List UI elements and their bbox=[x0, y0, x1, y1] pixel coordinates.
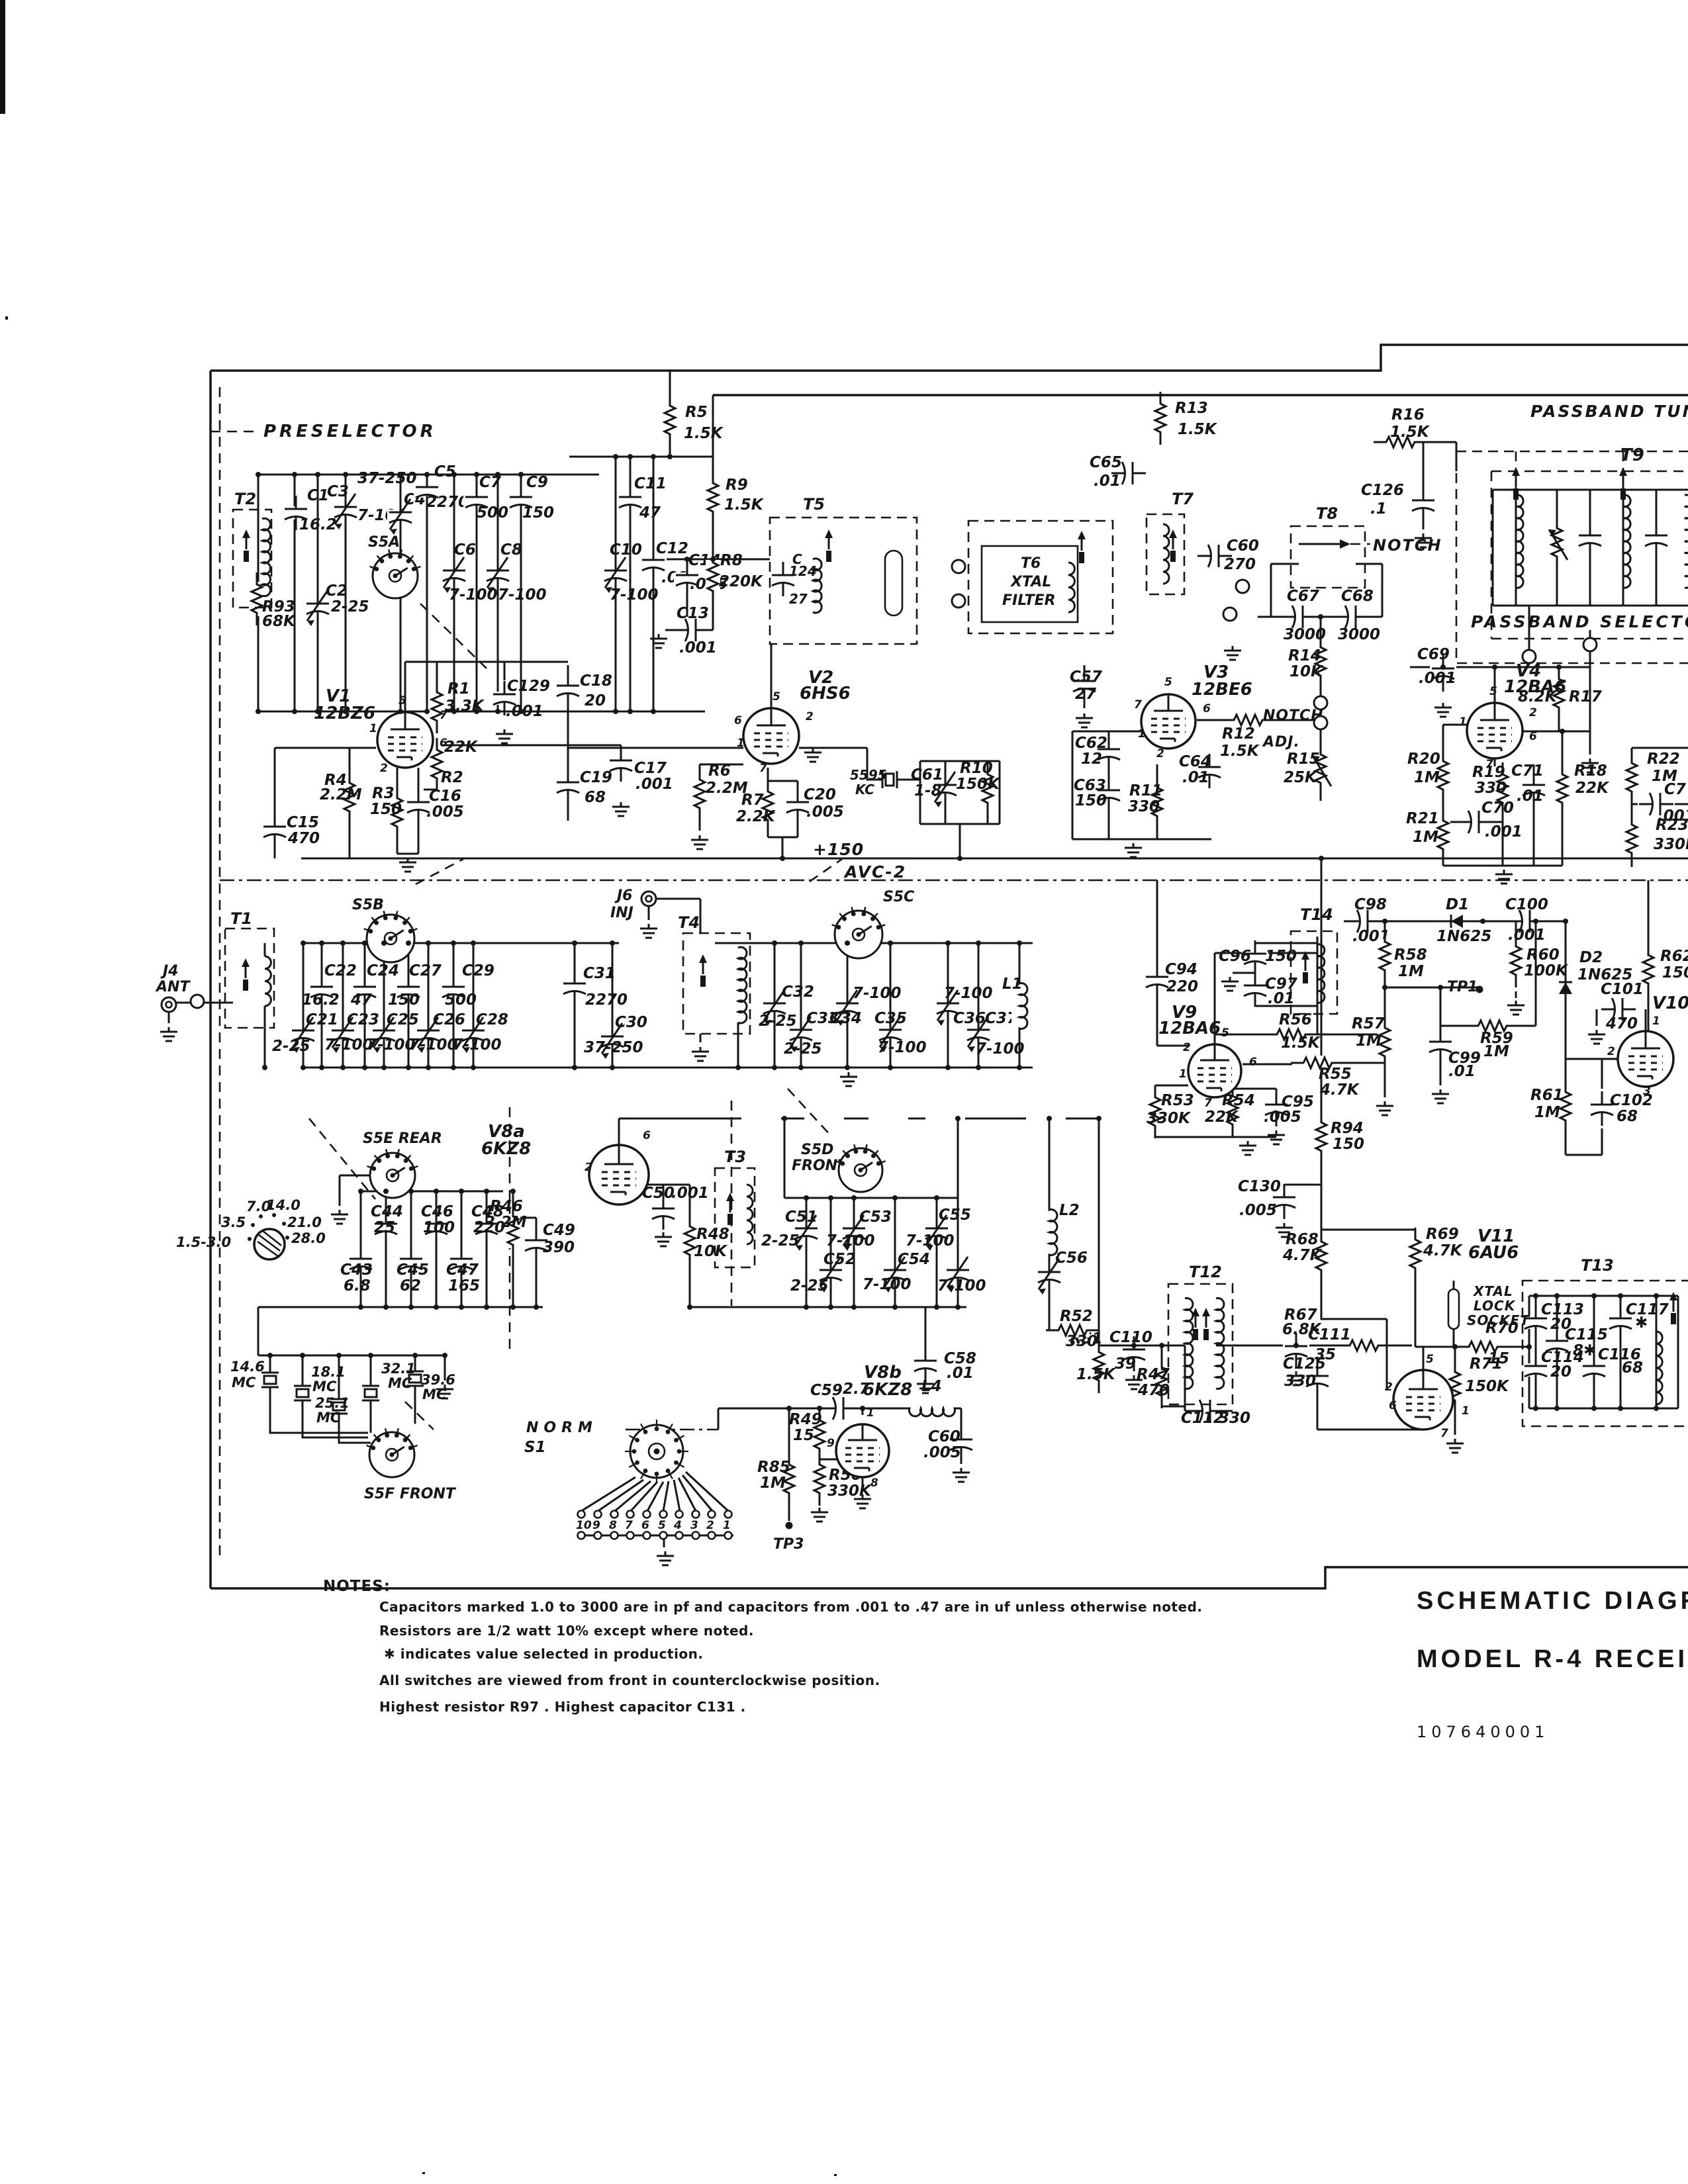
label: .005 bbox=[426, 803, 464, 821]
capacitor-C36: C367-100 bbox=[935, 985, 993, 1027]
label: 9 bbox=[827, 1437, 835, 1450]
label: C57 bbox=[1070, 668, 1102, 686]
label: C10 bbox=[610, 541, 642, 559]
label: C26 bbox=[433, 1011, 465, 1028]
label: R13 bbox=[1175, 400, 1208, 417]
capacitor-C46: C46100 bbox=[421, 1203, 455, 1245]
capacitor-C31: C312270 bbox=[561, 965, 628, 1009]
label: 6 bbox=[734, 714, 742, 727]
label: 25 bbox=[374, 1219, 395, 1236]
capacitor-C64: C64.01 bbox=[1179, 753, 1223, 788]
label: 2-25 bbox=[790, 1277, 829, 1295]
label: 27 bbox=[1075, 686, 1096, 703]
capacitor-C96: C96150 bbox=[1219, 940, 1297, 975]
label: D2 bbox=[1579, 949, 1603, 966]
label: R22 bbox=[1647, 751, 1680, 768]
label: 3000 bbox=[1338, 626, 1380, 643]
capacitor-unnamed: 7-100 bbox=[937, 1257, 986, 1295]
label: 330 bbox=[1128, 798, 1160, 815]
label: R21 bbox=[1406, 810, 1439, 827]
label: TP3 bbox=[773, 1536, 804, 1553]
crystal-X-32.1MC bbox=[360, 1376, 381, 1410]
label: C46 bbox=[421, 1203, 453, 1220]
label: C43 bbox=[340, 1261, 373, 1279]
label: 25K bbox=[1284, 769, 1318, 786]
label: R3 bbox=[372, 785, 395, 802]
capacitor-C17: C17.001 bbox=[608, 747, 673, 793]
label: R58 bbox=[1394, 946, 1427, 964]
rotary-switch-S5F bbox=[366, 1428, 417, 1477]
label: 16.2 bbox=[302, 991, 340, 1009]
label: 150 bbox=[1265, 948, 1297, 965]
label: 150 bbox=[522, 504, 554, 522]
capacitor-C4: C437-250 bbox=[357, 470, 426, 535]
ground-symbol bbox=[1239, 1141, 1256, 1155]
label: 68 bbox=[585, 789, 606, 806]
label: J6 bbox=[614, 887, 633, 904]
label: 2 bbox=[1529, 706, 1537, 719]
label: NORM bbox=[526, 1420, 598, 1436]
label: C28 bbox=[476, 1011, 508, 1028]
capacitor-C60: C60270 bbox=[1197, 537, 1259, 573]
label: 32.1 bbox=[381, 1361, 416, 1377]
resistor-R3: R3150 bbox=[370, 785, 404, 839]
label: C16 bbox=[429, 788, 461, 805]
label: MC bbox=[388, 1375, 412, 1391]
capacitor-C50: C50.001 bbox=[642, 1185, 709, 1230]
label: S5E REAR bbox=[363, 1130, 442, 1147]
label: 68K bbox=[262, 613, 297, 630]
capacitor-C-T9b bbox=[1643, 522, 1669, 557]
label: MC bbox=[312, 1379, 337, 1394]
switch-terminal bbox=[594, 1532, 602, 1539]
capacitor-C44: C4425 bbox=[371, 1203, 403, 1245]
section-label: PRESELECTOR bbox=[263, 422, 437, 441]
label: C100 bbox=[1505, 896, 1548, 913]
label: C24 bbox=[367, 962, 399, 979]
section-label: ANT bbox=[155, 979, 191, 995]
label: T6 bbox=[1021, 555, 1041, 572]
capacitor-C7: C7500 bbox=[463, 474, 508, 522]
label: .001 bbox=[1419, 670, 1456, 687]
label: R15 bbox=[1287, 751, 1320, 768]
label: C29 bbox=[462, 962, 494, 979]
label: C45 bbox=[397, 1261, 429, 1279]
label: .005 bbox=[806, 803, 844, 821]
label: 62 bbox=[400, 1277, 421, 1295]
label: 500 bbox=[445, 991, 477, 1009]
label: INJ bbox=[610, 905, 633, 921]
label: 12BA6 bbox=[1158, 1019, 1221, 1038]
label: .01 bbox=[1182, 769, 1209, 786]
transformer-T8: T8 bbox=[1291, 504, 1365, 588]
label: 1 bbox=[1652, 1015, 1660, 1028]
label: 220 bbox=[473, 1219, 505, 1236]
transformer-T14: T14 bbox=[1291, 905, 1337, 1014]
label: .005 bbox=[1239, 1202, 1277, 1219]
label: 7-100 bbox=[878, 1039, 927, 1056]
label: .01 bbox=[1517, 788, 1544, 805]
label: C51 bbox=[785, 1208, 818, 1226]
resistor-R69: R694.7K bbox=[1408, 1226, 1464, 1281]
label: 16.2 bbox=[299, 516, 337, 533]
ground-symbol bbox=[1507, 1001, 1524, 1015]
label: T14 bbox=[1300, 905, 1333, 924]
label: 6 bbox=[440, 737, 447, 750]
label: 5 bbox=[1164, 676, 1172, 689]
label: .001 bbox=[679, 639, 717, 657]
section-label: J4 bbox=[160, 963, 179, 979]
label: 270 bbox=[1224, 556, 1256, 573]
label: 1M bbox=[760, 1475, 786, 1492]
label: XTAL bbox=[1472, 1283, 1513, 1299]
label: 7 bbox=[1134, 698, 1142, 711]
label: 39 bbox=[1115, 1355, 1136, 1373]
label: C115 bbox=[1565, 1326, 1608, 1343]
label: T12 bbox=[1189, 1263, 1222, 1281]
label: S5F FRONT bbox=[364, 1486, 457, 1502]
label: 2 bbox=[1156, 747, 1164, 760]
feedthrough-terminal bbox=[1314, 696, 1327, 709]
label: 7-100 bbox=[453, 1036, 502, 1054]
scanned-schematic-page: { "title_block": {"line1": "SCHEMATIC DI… bbox=[0, 0, 1688, 2184]
label: 1M bbox=[1356, 1032, 1382, 1050]
label: 8✱ bbox=[1573, 1342, 1596, 1359]
label: 3000 bbox=[1284, 626, 1326, 643]
label: C126 bbox=[1361, 482, 1404, 499]
section-label: +150 bbox=[813, 840, 864, 859]
label: 12BE6 bbox=[1192, 680, 1252, 700]
crystal-frequency-label: 32.1 bbox=[381, 1361, 416, 1377]
ground-symbol bbox=[1432, 1089, 1449, 1103]
switch-terminal bbox=[708, 1532, 716, 1539]
label: T8 bbox=[1316, 504, 1338, 523]
label: C17 bbox=[634, 760, 667, 777]
label: 37-250 bbox=[357, 470, 417, 487]
capacitor-C2: C22-25 bbox=[305, 582, 369, 626]
label: C32 bbox=[782, 983, 814, 1001]
label: 165 bbox=[448, 1277, 480, 1295]
label: 5 bbox=[658, 1519, 666, 1532]
label: 7-100 bbox=[610, 586, 659, 604]
label: R23 bbox=[1656, 817, 1688, 834]
label: C15 bbox=[287, 814, 319, 831]
transformer-T4: T4 bbox=[678, 913, 750, 1034]
label: 12BA6 bbox=[1504, 677, 1566, 697]
label: 9 bbox=[592, 1519, 600, 1532]
label: R52 bbox=[1060, 1308, 1093, 1325]
section-label: LOCK bbox=[1474, 1298, 1516, 1314]
label: R49 bbox=[789, 1411, 822, 1428]
feedthrough-terminal bbox=[952, 560, 965, 573]
resistor-R94: R94150 bbox=[1314, 1111, 1364, 1163]
label: 150 bbox=[370, 801, 402, 818]
label: C1 bbox=[307, 487, 329, 504]
feedthrough-terminal bbox=[952, 594, 965, 608]
label: C54 bbox=[898, 1251, 930, 1268]
label: 12 bbox=[1081, 751, 1102, 768]
label: C23 bbox=[347, 1011, 379, 1028]
schematic-canvas: R9368KC116.2C22-25C37-100C437-250C52270C… bbox=[0, 0, 1688, 2184]
label: 47 bbox=[350, 991, 372, 1009]
feedthrough-terminal bbox=[1583, 638, 1597, 651]
label: 1 bbox=[723, 1519, 731, 1532]
junction-dots bbox=[1560, 729, 1565, 734]
label: 500 bbox=[477, 504, 508, 522]
feedthrough-terminal bbox=[1236, 580, 1249, 593]
label: 7-100 bbox=[937, 1277, 986, 1295]
ground-symbol bbox=[804, 748, 821, 762]
label: C18 bbox=[580, 672, 612, 690]
label: R14 bbox=[1288, 647, 1321, 664]
capacitor-C18: C1820 bbox=[555, 672, 612, 709]
capacitor-C47: C47165 bbox=[446, 1246, 480, 1295]
label: C2 bbox=[326, 582, 348, 600]
label: 150 bbox=[1075, 792, 1107, 809]
resistor-R52: R52330 bbox=[1046, 1308, 1099, 1350]
label: 1.5K bbox=[1076, 1366, 1117, 1383]
resistor-R16: R161.5K bbox=[1374, 406, 1430, 449]
label: 6.8 bbox=[344, 1277, 371, 1295]
vacuum-tube-V4: V412BA651267 bbox=[1459, 661, 1566, 771]
switch-terminal bbox=[676, 1532, 683, 1539]
label: 3 bbox=[1643, 1085, 1651, 1098]
label: R57 bbox=[1352, 1015, 1385, 1032]
ground-symbol bbox=[1376, 1101, 1393, 1115]
switch-terminal bbox=[725, 1511, 732, 1518]
ground-symbol bbox=[1588, 1030, 1605, 1044]
label: MC bbox=[232, 1375, 256, 1390]
capacitor-C35: C357-100 bbox=[874, 1010, 927, 1056]
label: FILTER bbox=[1002, 592, 1056, 609]
label: 2 bbox=[585, 1161, 592, 1174]
label: 2-25 bbox=[784, 1040, 822, 1058]
label: 5 bbox=[1426, 1353, 1434, 1366]
label: 150K bbox=[1662, 964, 1688, 981]
title-block: SCHEMATIC DIAGRAM MODEL R-4 RECEIVER 107… bbox=[1417, 1587, 1688, 1615]
jack-terminal bbox=[641, 891, 656, 906]
label: .1 bbox=[1370, 500, 1387, 518]
label: 2270 bbox=[585, 991, 628, 1009]
junction-dots bbox=[1318, 614, 1323, 619]
label: C47 bbox=[446, 1261, 479, 1279]
junction-dots bbox=[782, 1116, 1102, 1121]
wire-v4 bbox=[1410, 630, 1688, 867]
section-label: NORM bbox=[526, 1420, 598, 1436]
transformer-T1: T1 bbox=[225, 909, 274, 1028]
label: C71 bbox=[1511, 762, 1544, 780]
capacitor-C60: C60.005 bbox=[923, 1426, 974, 1461]
label: 6 bbox=[1389, 1399, 1397, 1412]
capacitor-C15: C15470 bbox=[261, 813, 320, 848]
resistor-R10: R10150K bbox=[956, 760, 1001, 815]
label: R8 bbox=[720, 552, 743, 569]
label: 39.6 bbox=[421, 1372, 455, 1388]
label: 1 bbox=[1462, 1404, 1470, 1418]
capacitor-C99: C99.01 bbox=[1427, 1028, 1481, 1080]
label: ANT bbox=[155, 979, 191, 995]
capacitor-C56: C56 bbox=[1036, 1250, 1088, 1295]
resistor-R61: R611M bbox=[1530, 1080, 1573, 1133]
ground-symbol bbox=[1434, 703, 1452, 717]
crystal-frequency-label: 25.1 bbox=[315, 1395, 350, 1411]
capacitor-C126: C126.1 bbox=[1361, 482, 1436, 522]
resistor-R85: R851M bbox=[757, 1453, 796, 1506]
label: R62 bbox=[1660, 948, 1688, 965]
note-line: All switches are viewed from front in co… bbox=[379, 1672, 880, 1688]
label: R7 bbox=[741, 792, 764, 809]
label: 150K bbox=[1465, 1378, 1510, 1395]
label: 20 bbox=[585, 692, 606, 709]
rotary-switch-S5D bbox=[835, 1144, 885, 1192]
resistor-R49: R4915 bbox=[789, 1408, 827, 1461]
ground-symbol bbox=[496, 729, 513, 743]
label: 220K bbox=[719, 573, 764, 590]
capacitor-C57: C5727 bbox=[1070, 668, 1102, 703]
ground-symbol bbox=[612, 802, 630, 816]
label: L1 bbox=[1002, 976, 1023, 993]
label: 10 bbox=[576, 1519, 592, 1532]
capacitor-C51: C512-25 bbox=[761, 1208, 820, 1251]
label: 20 bbox=[1550, 1363, 1571, 1381]
label: 22K bbox=[1205, 1109, 1239, 1126]
label: T13 bbox=[1581, 1256, 1614, 1275]
label: R9 bbox=[726, 477, 748, 494]
label: 7-100 bbox=[826, 1232, 875, 1250]
label: 6 bbox=[641, 1519, 649, 1532]
label: T9 bbox=[1620, 445, 1644, 465]
label: S5B bbox=[352, 897, 384, 913]
label: 7 bbox=[759, 762, 767, 775]
transformer-T12: T12 bbox=[1168, 1263, 1233, 1404]
label: 7-100 bbox=[976, 1040, 1025, 1058]
label: 6KZ8 bbox=[481, 1139, 531, 1159]
feedthrough-terminal bbox=[1523, 650, 1536, 663]
label: 330K bbox=[1654, 836, 1688, 853]
label: 7-100 bbox=[944, 985, 993, 1002]
scan-artifact bbox=[0, 0, 5, 114]
label: C111 bbox=[1308, 1326, 1351, 1343]
crystal-frequency-label: MC bbox=[388, 1375, 412, 1391]
label: 1.5K bbox=[684, 425, 724, 442]
label: 470 bbox=[1137, 1382, 1170, 1399]
label: R5 bbox=[685, 404, 708, 421]
capacitor-C112: C112330 bbox=[1181, 1398, 1250, 1427]
section-label: S5C bbox=[883, 889, 914, 905]
label: C36 bbox=[953, 1010, 986, 1027]
label: 2-25 bbox=[272, 1038, 310, 1055]
rotary-switch-S5B bbox=[364, 911, 418, 962]
section-label: S5F FRONT bbox=[364, 1486, 457, 1502]
schematic-title: SCHEMATIC DIAGRAM bbox=[1417, 1587, 1688, 1615]
label: 330 bbox=[1219, 1410, 1250, 1427]
label: .005 bbox=[923, 1444, 961, 1461]
label: 7 bbox=[1485, 758, 1493, 771]
ground-symbol bbox=[331, 1210, 348, 1224]
label: C49 bbox=[543, 1222, 575, 1239]
capacitor-C97: C97.01 bbox=[1242, 972, 1297, 1007]
label: C6 bbox=[454, 541, 476, 559]
feedthrough-terminal bbox=[191, 995, 204, 1008]
capacitor-C65: C65.01 bbox=[1090, 454, 1146, 490]
resistor-R9: R91.5K bbox=[706, 471, 765, 524]
capacitor-C94: C94220 bbox=[1144, 961, 1198, 998]
label: C70 bbox=[1481, 799, 1514, 817]
label: 7-100 bbox=[863, 1276, 912, 1293]
label: .001 bbox=[671, 1185, 709, 1202]
label: C60 bbox=[928, 1428, 961, 1445]
label: 18.1 bbox=[311, 1364, 346, 1380]
notes-heading: NOTES: bbox=[323, 1578, 1316, 1595]
label: C56 bbox=[1055, 1250, 1088, 1267]
label: 2 bbox=[1607, 1045, 1615, 1058]
label: 1.5K bbox=[1281, 1034, 1321, 1052]
label: J4 bbox=[160, 963, 179, 979]
test-point bbox=[1476, 986, 1483, 993]
label: V10 bbox=[1652, 993, 1688, 1013]
label: 1 bbox=[737, 737, 745, 750]
section-label: S5B bbox=[352, 897, 384, 913]
label: R60 bbox=[1526, 946, 1560, 964]
label: 7 bbox=[625, 1519, 633, 1532]
label: 22K bbox=[1575, 780, 1610, 797]
label: 330K bbox=[827, 1482, 872, 1500]
ground-symbol bbox=[655, 1232, 672, 1246]
switch-terminal bbox=[578, 1532, 585, 1539]
label: 7 bbox=[1204, 1097, 1212, 1110]
switch-terminal bbox=[692, 1532, 700, 1539]
label: C9 bbox=[526, 474, 548, 491]
resistor-R57: R571M bbox=[1352, 1015, 1392, 1069]
capacitor-C43: C436.8 bbox=[340, 1246, 374, 1295]
resistor-R21: R211M bbox=[1406, 809, 1450, 862]
label: 390 bbox=[543, 1239, 575, 1256]
label: 2270 bbox=[426, 494, 469, 511]
label: C98 bbox=[1354, 896, 1387, 913]
section-label: AVC-2 bbox=[843, 862, 906, 882]
rotary-switch-S5A bbox=[369, 549, 420, 598]
label: 1N625 bbox=[1436, 928, 1491, 945]
switch-terminal bbox=[643, 1511, 651, 1518]
resistor-R53: R53330K bbox=[1147, 1085, 1194, 1138]
vacuum-tube-V8a: V8a6KZ862 bbox=[481, 1122, 651, 1205]
label: 124 bbox=[789, 563, 817, 579]
label: 1M bbox=[1483, 1043, 1509, 1060]
label: 6AU6 bbox=[1468, 1243, 1519, 1263]
crystal-frequency-label: MC bbox=[316, 1410, 341, 1426]
switch-terminal bbox=[660, 1532, 667, 1539]
label: R68 bbox=[1286, 1231, 1319, 1248]
label: R16 bbox=[1391, 406, 1425, 424]
label: C27 bbox=[409, 962, 442, 979]
label: C68 bbox=[1341, 588, 1374, 605]
section-label: XTAL bbox=[1009, 574, 1051, 590]
capacitor-C29: C29500 bbox=[440, 962, 494, 1009]
resistor-R71: R71150K bbox=[1448, 1355, 1510, 1413]
label: 150K bbox=[956, 776, 1001, 793]
label: C52 bbox=[823, 1251, 856, 1268]
label: 100 bbox=[423, 1219, 455, 1236]
switch-terminal bbox=[594, 1511, 602, 1518]
capacitor-C30: C3037-250 bbox=[584, 1014, 647, 1059]
capacitor-C58: C58.01 bbox=[912, 1347, 976, 1382]
label: 2 bbox=[380, 762, 388, 775]
label: C11 bbox=[634, 475, 667, 492]
label: C110 bbox=[1109, 1329, 1152, 1346]
label: R6 bbox=[708, 762, 731, 780]
capacitor-C-T9a bbox=[1577, 522, 1603, 557]
label: 5 bbox=[773, 690, 780, 704]
